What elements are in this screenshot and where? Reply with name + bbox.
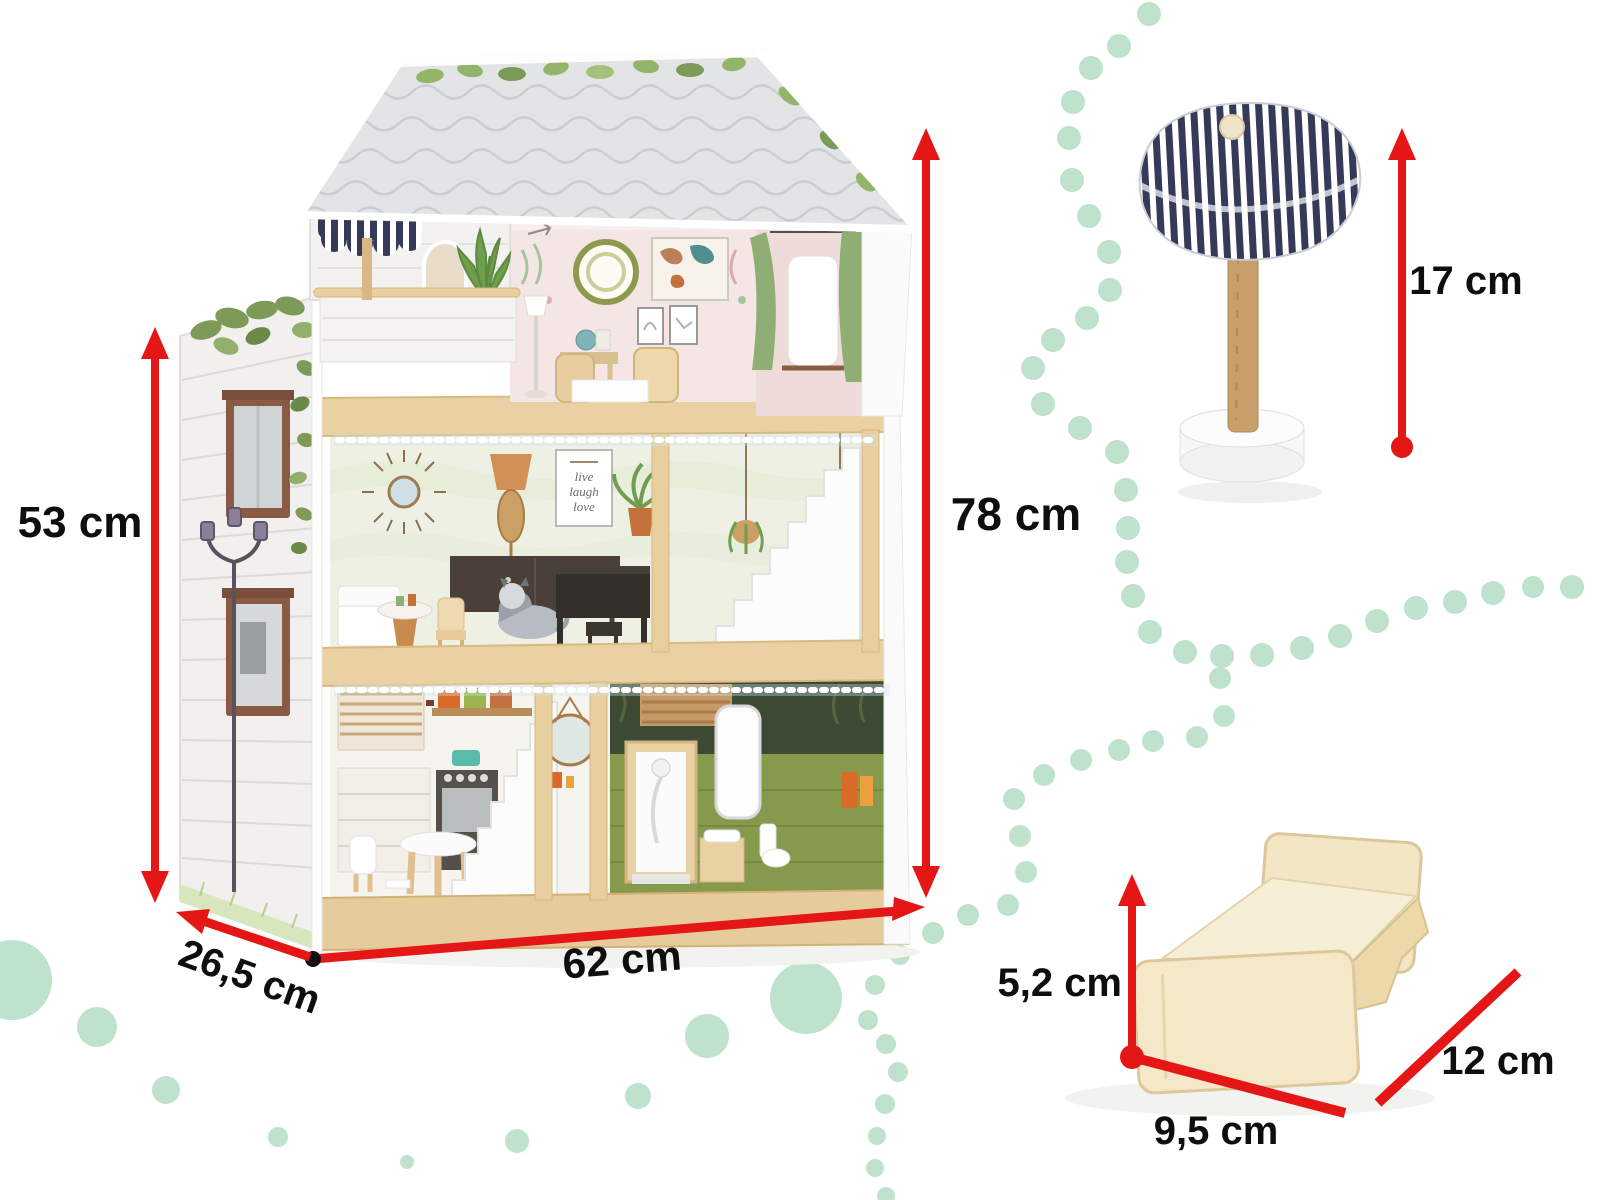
scene: live laugh love	[0, 0, 1600, 1200]
stool-height-label: 17 cm	[1409, 259, 1522, 303]
bed-length-label: 12 cm	[1441, 1039, 1554, 1083]
poster-line1: live	[575, 469, 594, 484]
arrowhead-up	[1118, 874, 1146, 906]
doll-stool	[1130, 85, 1370, 503]
awning-pole	[362, 238, 372, 300]
middle-floor: live laugh love	[330, 430, 870, 676]
attic-window	[788, 256, 838, 366]
endpoint-dot	[1391, 436, 1413, 458]
bed-width-label: 9,5 cm	[1154, 1109, 1279, 1153]
side-window-upper	[222, 390, 294, 518]
dim-front-height	[141, 327, 169, 903]
arrowhead-up	[912, 128, 940, 160]
stool-pole	[1228, 246, 1258, 432]
kitchen-shelf	[432, 708, 532, 716]
house-side-panel	[180, 294, 318, 950]
toy-shower	[626, 742, 696, 884]
product-image: live laugh love	[0, 0, 1600, 1200]
arrowhead-up	[141, 327, 169, 359]
balcony-railing	[320, 296, 516, 362]
house-height-label: 78 cm	[951, 488, 1081, 540]
live-laugh-love-poster: live laugh love	[556, 450, 612, 526]
attic	[510, 214, 912, 416]
stool-shadow	[1178, 481, 1322, 503]
width-label: 62 cm	[561, 931, 683, 987]
arrowhead-down	[141, 871, 169, 903]
dim-house-height	[912, 128, 940, 898]
poster-line2: laugh	[569, 484, 599, 499]
post-middle-right	[862, 430, 879, 652]
globe-print	[576, 330, 596, 350]
balcony-handrail	[314, 288, 520, 297]
toy-mirror	[716, 706, 760, 818]
stool-base-bottom	[1180, 442, 1304, 482]
dotted-arc-bottom-left	[0, 940, 842, 1169]
right-corner-strip	[884, 414, 910, 944]
stool-cushion	[1130, 85, 1370, 281]
arrowhead-up	[1388, 128, 1416, 160]
attic-right-outer-wall	[862, 216, 912, 416]
left-corner-strip	[312, 294, 322, 952]
arrowhead-down	[912, 866, 940, 898]
post-ground-left	[535, 684, 552, 900]
post-middle-left	[652, 434, 669, 652]
attic-window-wall	[750, 214, 868, 416]
cushion-knob	[1220, 115, 1244, 139]
dotted-curve-right	[1250, 575, 1584, 667]
dollhouse: live laugh love	[180, 52, 920, 968]
roof	[286, 52, 916, 229]
toy-pot	[452, 750, 480, 766]
round-plate-print	[576, 242, 636, 302]
world-map-print	[652, 238, 728, 300]
bathroom	[610, 678, 884, 898]
front-height-label: 53 cm	[18, 498, 143, 547]
toy-vanity	[700, 830, 744, 882]
arrowhead-up-left	[176, 909, 210, 934]
post-ground-mid	[590, 682, 607, 900]
poster-line3: love	[573, 499, 595, 514]
middle-floor-slab	[318, 640, 898, 686]
bed-height-label: 5,2 cm	[997, 961, 1122, 1005]
dim-bed-length-line	[1378, 972, 1518, 1103]
dotted-curve-top	[1021, 2, 1234, 668]
